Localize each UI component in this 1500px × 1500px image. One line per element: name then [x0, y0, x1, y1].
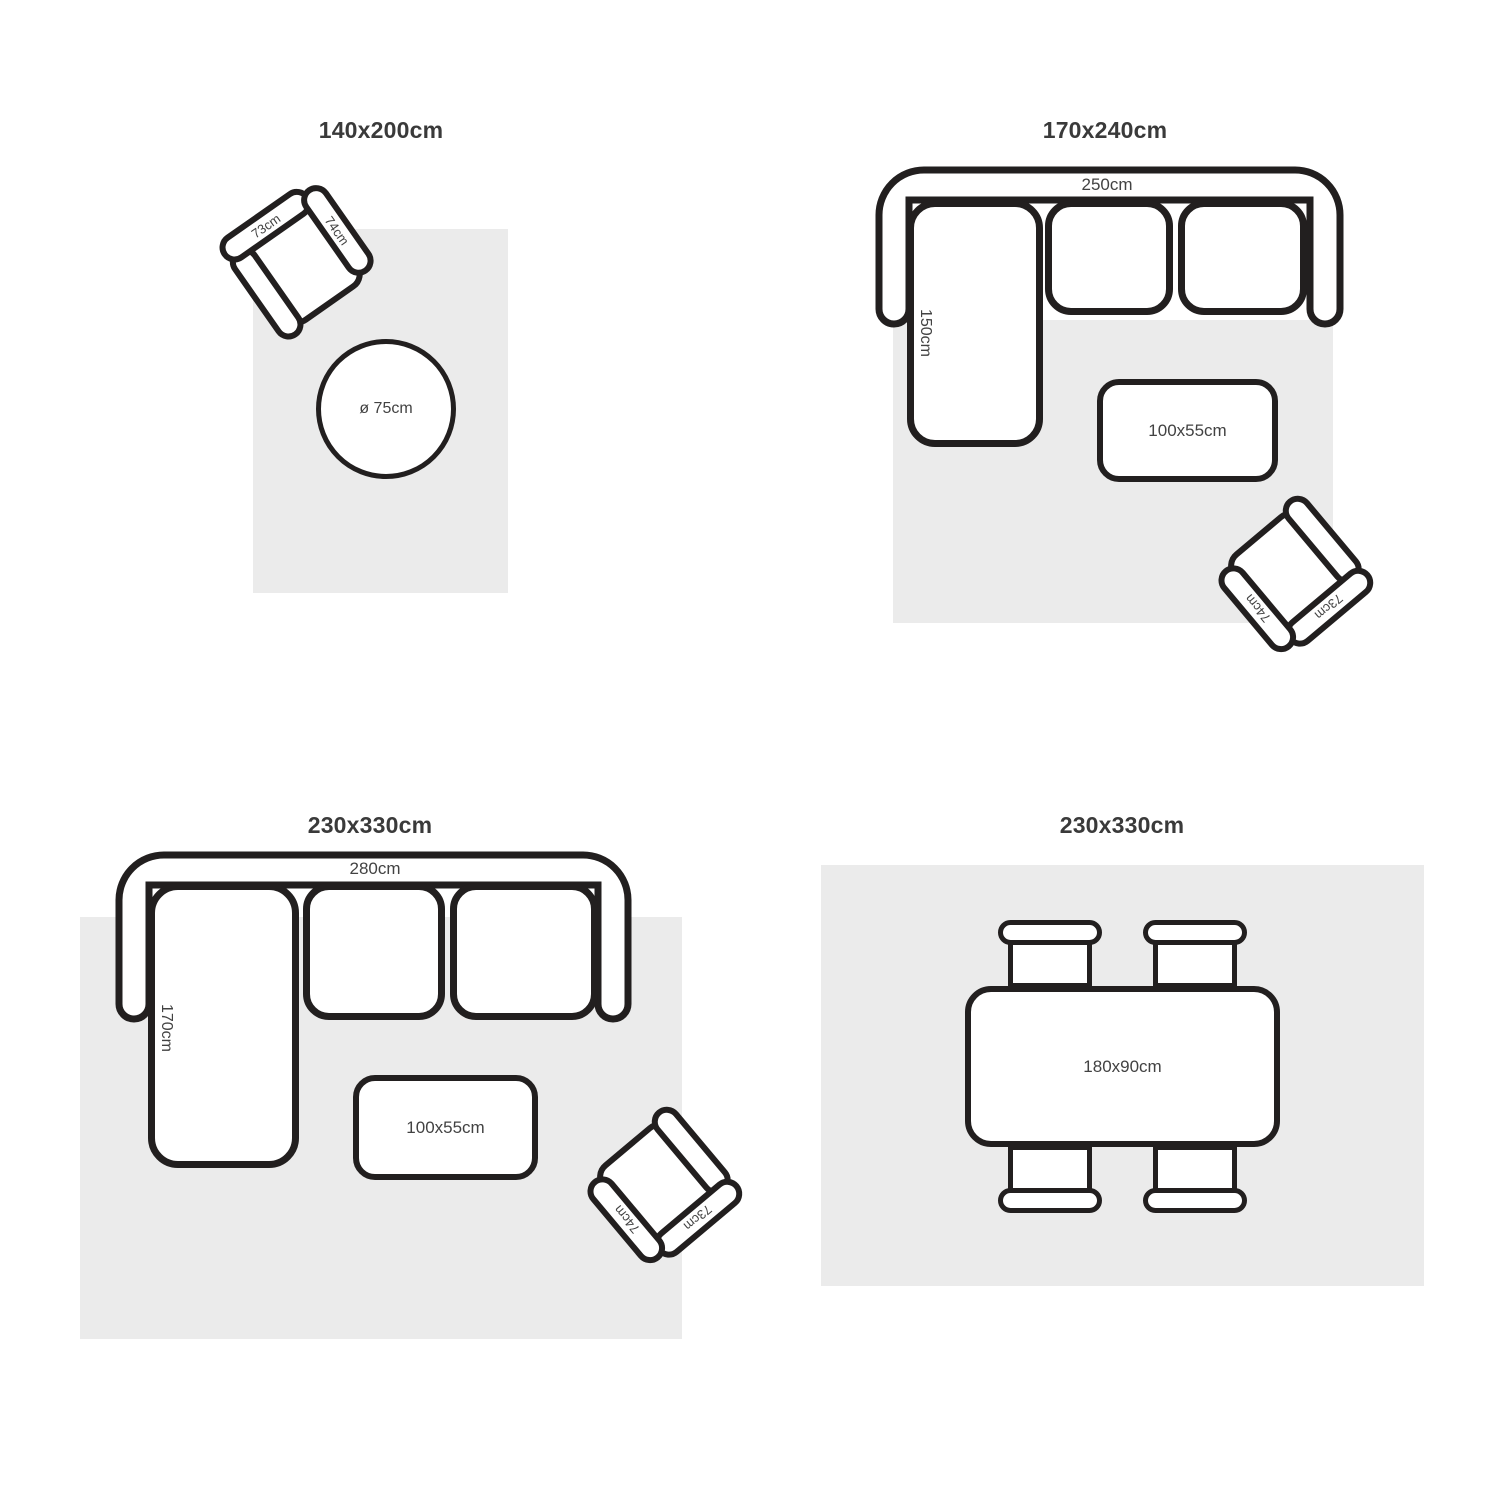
dining-table: 180x90cm — [965, 986, 1280, 1147]
armchair-back-label: 73cm — [681, 1202, 715, 1234]
sofa-cushion — [1045, 200, 1173, 315]
sofa-width-label: 280cm — [308, 858, 442, 880]
panel-title-230x330-living: 230x330cm — [220, 812, 520, 839]
dining-chair-seat — [1153, 938, 1237, 988]
coffee-table: 100x55cm — [353, 1075, 538, 1180]
armchair-back-label: 73cm — [1312, 591, 1346, 623]
sofa-chaise-label: 150cm — [915, 303, 935, 363]
dining-chair-backrest — [1143, 1188, 1247, 1213]
rug-size-guide-diagram: 140x200cm ø 75cm 73cm 74cm 170x240cm 250… — [0, 0, 1500, 1500]
sofa-cushion — [303, 883, 445, 1020]
dining-chair-seat — [1008, 938, 1092, 988]
dining-chair-backrest — [998, 1188, 1102, 1213]
sofa-width-label: 250cm — [1040, 174, 1174, 196]
round-side-table-label: ø 75cm — [359, 400, 412, 418]
sofa-cushion — [450, 883, 598, 1020]
dining-chair-backrest — [1143, 920, 1247, 945]
coffee-table-label: 100x55cm — [406, 1118, 484, 1138]
round-side-table: ø 75cm — [316, 339, 456, 479]
sofa-cushion — [1178, 200, 1307, 315]
panel-title-170x240: 170x240cm — [955, 117, 1255, 144]
coffee-table-label: 100x55cm — [1148, 421, 1226, 441]
panel-title-140x200: 140x200cm — [231, 117, 531, 144]
dining-chair-backrest — [998, 920, 1102, 945]
dining-table-label: 180x90cm — [1083, 1057, 1161, 1077]
panel-title-230x330-dining: 230x330cm — [972, 812, 1272, 839]
coffee-table: 100x55cm — [1097, 379, 1278, 482]
sofa-chaise-label: 170cm — [156, 998, 176, 1058]
